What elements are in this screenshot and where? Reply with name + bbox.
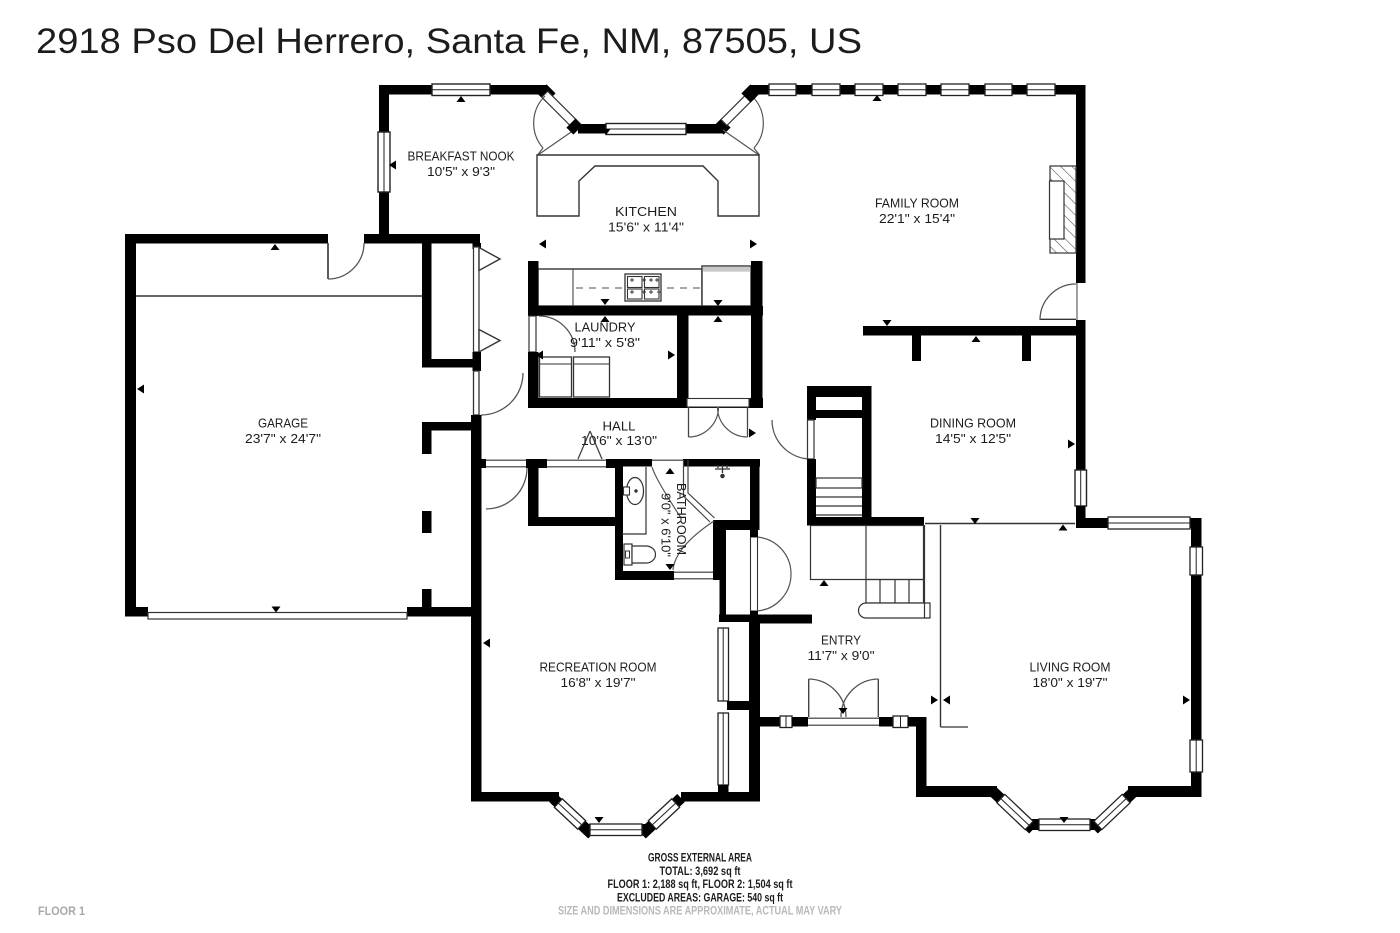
svg-text:11'7" x 9'0": 11'7" x 9'0" [808,648,875,663]
svg-text:22'1" x 15'4": 22'1" x 15'4" [879,211,955,226]
svg-text:9'11" x 5'8": 9'11" x 5'8" [570,335,640,350]
svg-text:ENTRY: ENTRY [821,633,861,648]
svg-text:14'5" x 12'5": 14'5" x 12'5" [935,431,1011,446]
svg-text:FLOOR 1: 2,188 sq ft, FLOOR 2:: FLOOR 1: 2,188 sq ft, FLOOR 2: 1,504 sq … [608,879,793,891]
svg-text:16'8" x 19'7": 16'8" x 19'7" [561,675,636,690]
svg-text:RECREATION ROOM: RECREATION ROOM [540,660,657,675]
svg-text:HALL: HALL [603,419,636,434]
svg-text:9'0" x 6'10": 9'0" x 6'10" [659,493,674,557]
svg-text:BREAKFAST NOOK: BREAKFAST NOOK [408,149,515,164]
svg-text:GARAGE: GARAGE [258,416,308,431]
svg-text:SIZE AND DIMENSIONS ARE APPROX: SIZE AND DIMENSIONS ARE APPROXIMATE, ACT… [558,906,842,918]
svg-text:15'6" x 11'4": 15'6" x 11'4" [608,220,684,235]
svg-text:DINING ROOM: DINING ROOM [930,416,1016,431]
svg-text:23'7" x 24'7": 23'7" x 24'7" [245,431,321,446]
svg-text:FLOOR 1: FLOOR 1 [38,906,86,918]
svg-text:GROSS EXTERNAL AREA: GROSS EXTERNAL AREA [648,853,752,865]
svg-text:BATHROOM: BATHROOM [674,483,689,555]
svg-text:10'5" x 9'3": 10'5" x 9'3" [427,164,495,179]
svg-text:10'6" x 13'0": 10'6" x 13'0" [581,433,657,448]
svg-text:FAMILY ROOM: FAMILY ROOM [875,196,959,211]
svg-text:2918 Pso Del Herrero, Santa Fe: 2918 Pso Del Herrero, Santa Fe, NM, 8750… [36,21,862,61]
svg-text:TOTAL: 3,692 sq ft: TOTAL: 3,692 sq ft [660,866,741,878]
svg-text:LAUNDRY: LAUNDRY [575,320,636,335]
svg-text:EXCLUDED AREAS: GARAGE: 540 sq: EXCLUDED AREAS: GARAGE: 540 sq ft [617,892,783,904]
svg-text:KITCHEN: KITCHEN [615,204,677,219]
svg-text:LIVING ROOM: LIVING ROOM [1030,660,1111,675]
svg-text:18'0" x 19'7": 18'0" x 19'7" [1033,675,1108,690]
